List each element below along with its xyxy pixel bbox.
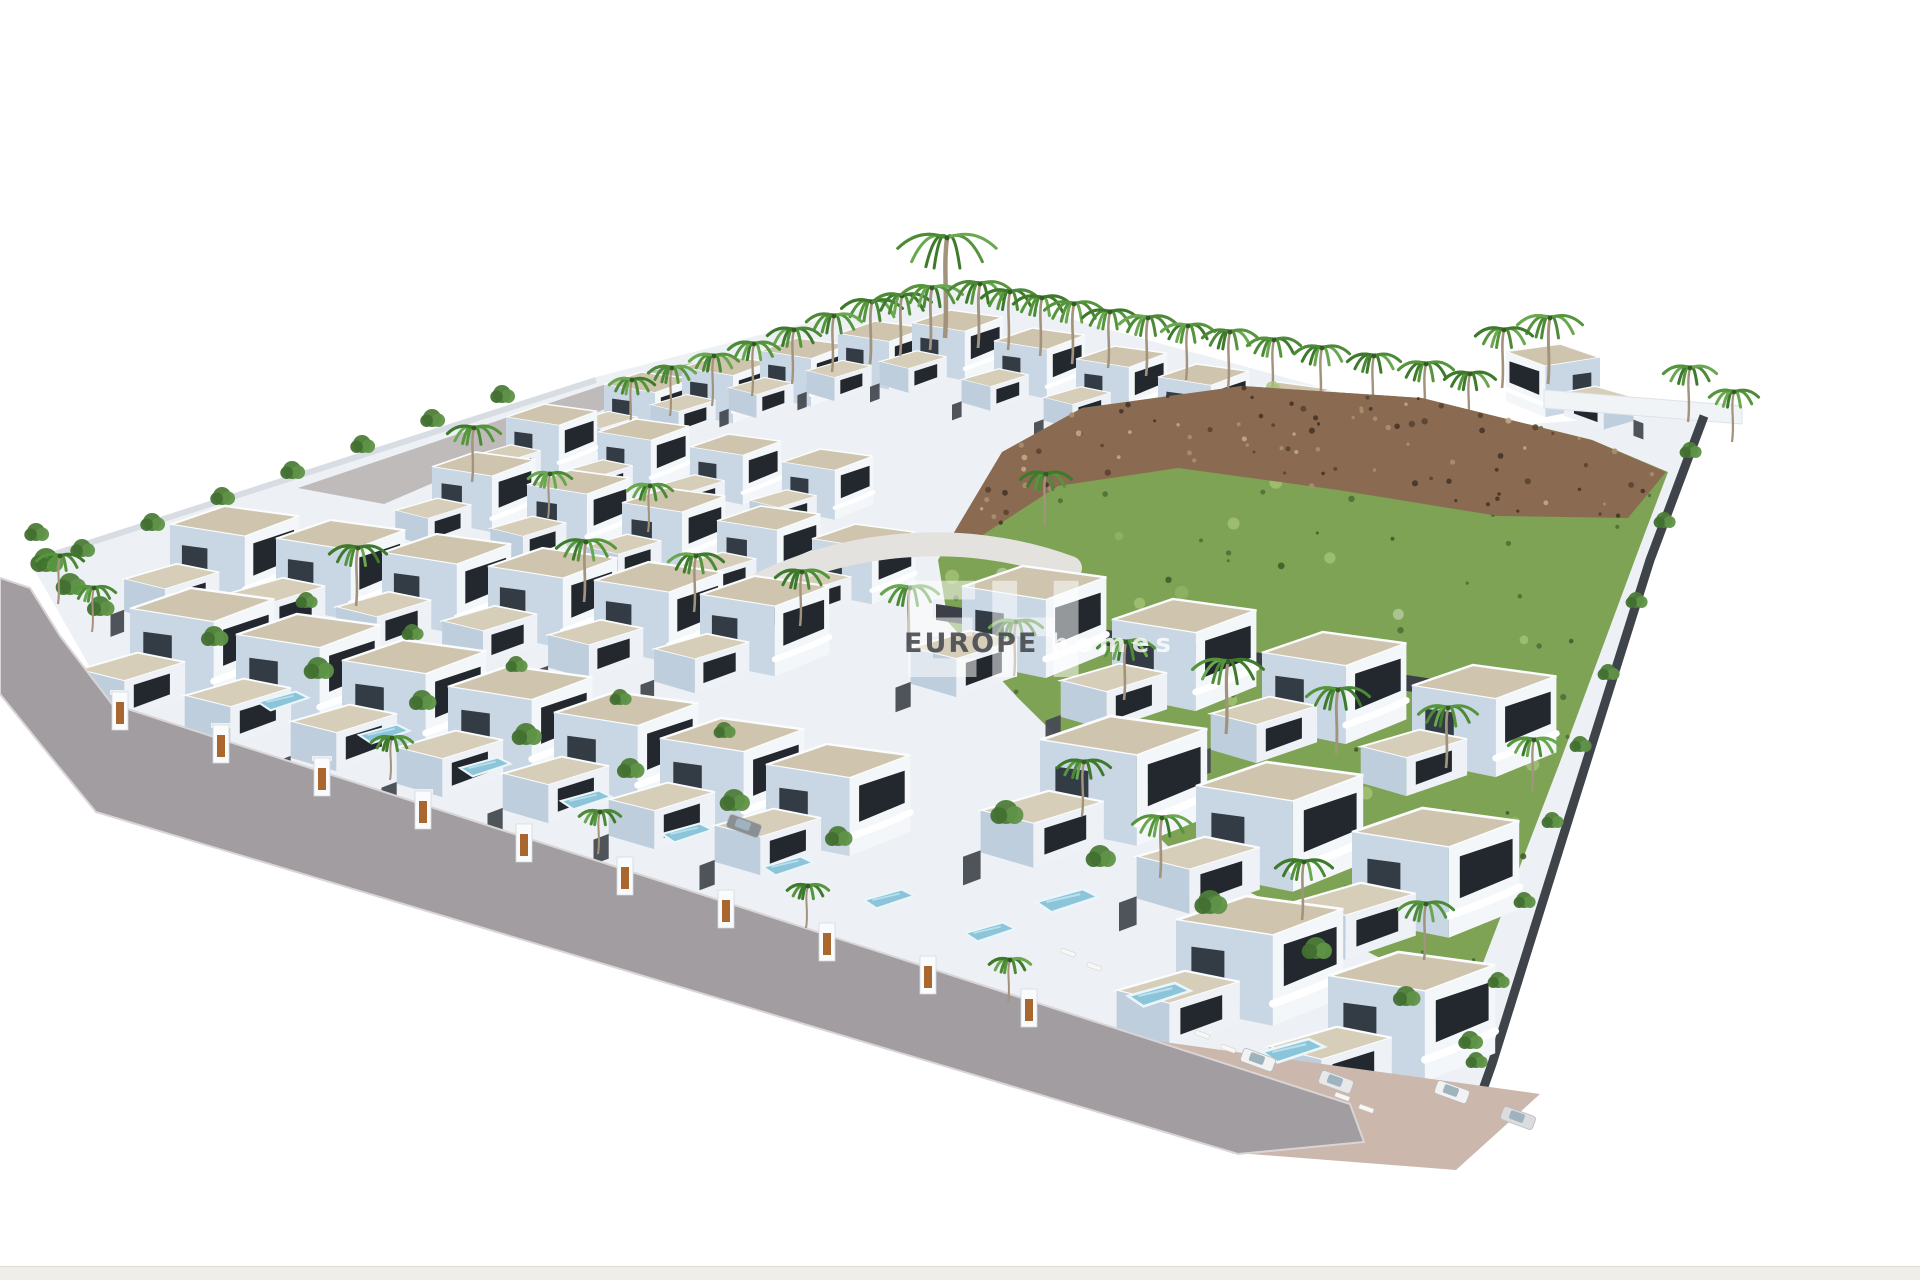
vegetation-speckle [945, 570, 959, 584]
bush-foliage [100, 601, 115, 616]
bush-foliage [1406, 991, 1421, 1006]
bush [490, 385, 515, 403]
gate-door [924, 966, 932, 988]
vegetation-speckle [1406, 443, 1409, 446]
vegetation-speckle [1300, 406, 1306, 412]
palm-crown [1160, 816, 1165, 821]
vegetation-speckle [1412, 480, 1418, 486]
vegetation-speckle [1506, 418, 1512, 424]
vegetation-speckle [1289, 401, 1294, 406]
bush-foliage [1476, 1056, 1488, 1068]
bush-foliage [825, 832, 839, 846]
vegetation-speckle [1520, 635, 1529, 644]
palm-crown [670, 366, 675, 371]
bush-foliage [1099, 851, 1116, 868]
palm-crown [1372, 354, 1377, 359]
bush-foliage [1524, 896, 1536, 908]
palm-trunk [92, 588, 94, 632]
entry-gate [312, 756, 332, 796]
bush-foliage [1680, 447, 1691, 458]
palm-crown [356, 546, 361, 551]
palm-crown [1446, 706, 1451, 711]
palm-trunk [472, 428, 474, 482]
palm-crown [806, 884, 811, 889]
palm-crown [584, 540, 589, 545]
bush-foliage [1470, 1036, 1484, 1050]
bush-foliage [214, 631, 229, 646]
bush-foliage [516, 660, 528, 672]
vegetation-speckle [1393, 609, 1404, 620]
vegetation-speckle [1259, 414, 1264, 419]
bush-foliage [409, 696, 423, 710]
bush-foliage [412, 628, 424, 640]
palm-crown [832, 314, 837, 319]
palm-crown [598, 810, 603, 815]
palm-crown [1040, 296, 1045, 301]
vegetation-speckle [1506, 811, 1510, 815]
bush-foliage [304, 664, 319, 679]
bush [350, 435, 375, 453]
palm-trunk [930, 288, 932, 350]
vegetation-speckle [1354, 747, 1358, 751]
vegetation-speckle [1386, 425, 1391, 430]
palm-crown [908, 586, 913, 591]
bush-foliage [306, 596, 318, 608]
vegetation-speckle [984, 497, 989, 502]
bush-foliage [1514, 897, 1525, 908]
vegetation-speckle [1359, 406, 1363, 410]
palm-trunk [390, 738, 392, 780]
bush-foliage [1315, 943, 1332, 960]
vegetation-speckle [1506, 541, 1511, 546]
bush [24, 523, 49, 541]
gate-door [520, 834, 528, 856]
palm-trunk [806, 886, 808, 928]
palm-crown [945, 236, 950, 241]
vegetation-speckle [1317, 422, 1320, 425]
bush-foliage [502, 390, 516, 404]
vegetation-speckle [1616, 514, 1620, 518]
vegetation-speckle [1497, 492, 1501, 496]
vegetation-speckle [1478, 413, 1483, 418]
palm-crown [1302, 860, 1307, 865]
palm-trunk [1186, 326, 1188, 380]
palm-trunk [630, 380, 632, 426]
bush-foliage [990, 807, 1007, 824]
entry-gate [413, 789, 433, 829]
vegetation-speckle [1648, 494, 1651, 497]
vegetation-speckle [1188, 435, 1192, 439]
vegetation-speckle [1117, 455, 1121, 459]
vegetation-speckle [1641, 489, 1646, 494]
vegetation-speckle [1058, 498, 1063, 503]
vegetation-speckle [1283, 471, 1286, 474]
vegetation-speckle [1498, 453, 1504, 459]
vegetation-speckle [1369, 407, 1373, 411]
palm-trunk [1082, 762, 1084, 816]
gate-door [823, 933, 831, 955]
vegetation-speckle [1391, 537, 1395, 541]
palm-trunk [1688, 368, 1690, 422]
vegetation-speckle [1292, 432, 1295, 435]
vegetation-speckle [1565, 735, 1569, 739]
vegetation-speckle [953, 595, 958, 600]
vegetation-speckle [1019, 443, 1024, 448]
vegetation-speckle [1486, 502, 1490, 506]
vegetation-speckle [1397, 627, 1403, 633]
vegetation-speckle [991, 514, 996, 519]
palm-crown [390, 736, 395, 741]
vegetation-speckle [1316, 447, 1321, 452]
bush-foliage [82, 544, 96, 558]
bush-foliage [152, 518, 166, 532]
vegetation-speckle [1348, 496, 1354, 502]
vegetation-speckle [1125, 402, 1130, 407]
palm-crown [472, 426, 477, 431]
vegetation-speckle [1578, 437, 1581, 440]
palm-crown [1228, 330, 1233, 335]
vegetation-speckle [1128, 430, 1132, 434]
page-bottom-strip [0, 1266, 1920, 1280]
vegetation-speckle [1237, 422, 1241, 426]
bush-foliage [1466, 1057, 1477, 1068]
vegetation-speckle [1466, 582, 1469, 585]
vegetation-speckle [1321, 472, 1325, 476]
bush-foliage [432, 414, 446, 428]
gate-door [318, 768, 326, 790]
bush [420, 409, 445, 427]
bush-foliage [317, 663, 334, 680]
bush-foliage [1626, 597, 1637, 608]
palm-trunk [800, 572, 802, 626]
bush-foliage [617, 764, 631, 778]
bush-foliage [296, 597, 307, 608]
vegetation-speckle [1241, 386, 1246, 391]
entry-gate [1019, 987, 1039, 1027]
vegetation-speckle [1069, 412, 1074, 417]
palm-crown [1226, 660, 1231, 665]
palm-trunk [978, 284, 980, 348]
vegetation-speckle [1134, 598, 1145, 609]
bush-foliage [201, 632, 215, 646]
vegetation-speckle [1446, 479, 1451, 484]
palm-trunk [584, 542, 586, 602]
bush [210, 487, 235, 505]
palm-crown [1186, 324, 1191, 329]
vegetation-speckle [1409, 421, 1415, 427]
palm-trunk [1072, 304, 1074, 364]
palm-crown [1108, 310, 1113, 315]
palm-crown [1008, 958, 1013, 963]
palm-crown [548, 472, 553, 477]
scene-canvas [0, 0, 1920, 1280]
vegetation-speckle [1102, 491, 1108, 497]
bush-foliage [402, 629, 413, 640]
vegetation-speckle [1003, 510, 1009, 516]
palm-crown [1124, 640, 1129, 645]
vegetation-speckle [1333, 467, 1337, 471]
vegetation-speckle [1394, 424, 1400, 430]
palm-crown [1424, 362, 1429, 367]
vegetation-speckle [1294, 450, 1298, 454]
vegetation-speckle [1417, 397, 1420, 400]
gate-door [419, 801, 427, 823]
vegetation-speckle [1309, 483, 1314, 488]
vegetation-speckle [1650, 472, 1654, 476]
bush-foliage [733, 795, 750, 812]
entry-gate [716, 888, 736, 928]
vegetation-speckle [1532, 424, 1538, 430]
palm-trunk [1146, 318, 1148, 376]
bush-foliage [1570, 741, 1581, 752]
bush-foliage [1664, 516, 1676, 528]
vegetation-speckle [1250, 396, 1253, 399]
palm-crown [58, 554, 63, 559]
vegetation-speckle [1309, 428, 1315, 434]
palm-crown [792, 328, 797, 333]
palm-crown [1532, 738, 1537, 743]
palm-trunk [1424, 904, 1426, 960]
bush-foliage [140, 518, 153, 531]
palm-crown [1502, 328, 1507, 333]
palm-trunk [712, 356, 714, 406]
vegetation-speckle [1279, 446, 1283, 450]
palm-crown [648, 484, 653, 489]
vegetation-speckle [1153, 419, 1156, 422]
palm-trunk [1124, 642, 1126, 700]
vegetation-speckle [1495, 497, 1500, 502]
vegetation-speckle [1324, 552, 1335, 563]
vegetation-speckle [1246, 443, 1249, 446]
palm-trunk [1226, 662, 1228, 734]
palm-trunk [1532, 740, 1534, 792]
gate-door [1025, 999, 1033, 1021]
vegetation-speckle [999, 521, 1003, 525]
palm-trunk [598, 812, 600, 854]
entry-gate [110, 690, 130, 730]
vegetation-speckle [1525, 478, 1531, 484]
bush-foliage [1194, 897, 1211, 914]
bush-foliage [1458, 1036, 1471, 1049]
bush-foliage [362, 440, 376, 454]
palm-crown [1072, 302, 1077, 307]
bush-foliage [1636, 596, 1648, 608]
vegetation-speckle [1316, 532, 1319, 535]
bush-foliage [525, 729, 542, 746]
gate-door [217, 735, 225, 757]
entry-gate [615, 855, 635, 895]
entry-gate [514, 822, 534, 862]
vegetation-speckle [1603, 503, 1606, 506]
vegetation-speckle [1187, 451, 1192, 456]
palm-crown [752, 342, 757, 347]
palm-crown [1320, 346, 1325, 351]
vegetation-speckle [1242, 436, 1247, 441]
palm-trunk [1160, 818, 1162, 878]
bush-foliage [350, 440, 363, 453]
palm-trunk [792, 330, 794, 384]
vegetation-speckle [1516, 510, 1519, 513]
palm-trunk [1044, 474, 1046, 526]
palm-trunk [1548, 318, 1550, 384]
vegetation-speckle [1036, 448, 1042, 454]
bush-foliage [292, 466, 306, 480]
vegetation-speckle [1615, 525, 1619, 529]
vegetation-speckle [1278, 563, 1285, 570]
palm-crown [1548, 316, 1553, 321]
bush-foliage [1542, 817, 1553, 828]
vegetation-speckle [1105, 469, 1111, 475]
bush-foliage [1488, 977, 1499, 988]
vegetation-speckle [1192, 458, 1196, 462]
aerial-render-page: EH EUROPEhomes [0, 0, 1920, 1280]
vegetation-speckle [980, 507, 983, 510]
palm-crown [800, 570, 805, 575]
vegetation-speckle [1021, 467, 1026, 472]
palm-crown [1272, 338, 1277, 343]
bush-foliage [838, 831, 853, 846]
bush-foliage [36, 528, 50, 542]
palm-crown [930, 286, 935, 291]
palm-trunk [832, 316, 834, 372]
vegetation-speckle [1253, 451, 1256, 454]
vegetation-speckle [1544, 500, 1549, 505]
palm-crown [1146, 316, 1151, 321]
gate-door [116, 702, 124, 724]
palm-crown [1424, 902, 1429, 907]
palm-crown [1044, 472, 1049, 477]
palm-crown [694, 554, 699, 559]
gate-door [621, 867, 629, 889]
vegetation-speckle [1260, 490, 1265, 495]
vegetation-speckle [1313, 415, 1318, 420]
vegetation-speckle [1520, 853, 1526, 859]
palm-trunk [1336, 690, 1338, 754]
vegetation-speckle [1628, 482, 1634, 488]
vegetation-speckle [1584, 463, 1588, 467]
vegetation-speckle [1560, 694, 1566, 700]
vegetation-speckle [1208, 427, 1213, 432]
vegetation-speckle [1286, 446, 1291, 451]
palm-trunk [694, 556, 696, 612]
entry-gate [211, 723, 231, 763]
vegetation-speckle [1199, 538, 1203, 542]
vegetation-speckle [1176, 423, 1179, 426]
bush-foliage [620, 693, 632, 705]
palm-crown [1082, 760, 1087, 765]
entry-gate [817, 921, 837, 961]
bush-foliage [610, 694, 621, 705]
palm-trunk [900, 296, 902, 356]
palm-trunk [1302, 862, 1304, 920]
palm-crown [712, 354, 717, 359]
vegetation-speckle [1373, 468, 1376, 471]
vegetation-speckle [1479, 428, 1485, 434]
bush-foliage [490, 390, 503, 403]
palm-trunk [1008, 292, 1010, 350]
bush-foliage [1005, 806, 1023, 824]
vegetation-speckle [1002, 490, 1008, 496]
bush-foliage [1608, 668, 1620, 680]
bush [140, 513, 165, 531]
palm-trunk [1732, 392, 1734, 442]
bush-foliage [1552, 816, 1564, 828]
palm-trunk [356, 548, 358, 606]
palm-trunk [648, 486, 650, 532]
vegetation-speckle [1115, 532, 1124, 541]
bush-foliage [24, 528, 37, 541]
vegetation-speckle [1518, 594, 1523, 599]
palm-crown [1008, 290, 1013, 295]
vegetation-speckle [1100, 444, 1104, 448]
vegetation-speckle [1598, 512, 1601, 515]
vegetation-speckle [1551, 432, 1554, 435]
bush-foliage [512, 730, 527, 745]
bush-foliage [630, 763, 645, 778]
vegetation-speckle [1495, 468, 1499, 472]
vegetation-speckle [1612, 448, 1618, 454]
palm-crown [1468, 372, 1473, 377]
vegetation-speckle [1439, 403, 1445, 409]
vegetation-speckle [1119, 409, 1124, 414]
bush-foliage [1086, 852, 1101, 867]
bush-foliage [720, 796, 735, 811]
vegetation-speckle [1271, 423, 1275, 427]
development-render [0, 0, 1920, 1280]
vegetation-speckle [1429, 477, 1433, 481]
bush-foliage [422, 695, 437, 710]
vegetation-speckle [1227, 559, 1230, 562]
palm-crown [92, 586, 97, 591]
bush [280, 461, 305, 479]
bush-foliage [1654, 517, 1665, 528]
bush-foliage [1580, 740, 1592, 752]
palm-trunk [548, 474, 550, 518]
palm-trunk [908, 588, 910, 646]
bush-foliage [1498, 976, 1510, 988]
vegetation-speckle [1175, 586, 1189, 600]
vegetation-speckle [1166, 395, 1170, 399]
palm-trunk [870, 302, 872, 364]
bush-foliage [210, 492, 223, 505]
vegetation-speckle [1569, 639, 1574, 644]
bush-foliage [1393, 992, 1407, 1006]
palm-trunk [1502, 330, 1504, 388]
vegetation-speckle [1373, 417, 1378, 422]
palm-trunk [1108, 312, 1110, 368]
palm-trunk [1008, 960, 1010, 1002]
vegetation-speckle [1454, 499, 1457, 502]
entry-gate [918, 954, 938, 994]
vegetation-speckle [1523, 446, 1526, 449]
bush-foliage [420, 414, 433, 427]
bush-foliage [1690, 446, 1702, 458]
bush-foliage [724, 726, 736, 738]
bush-foliage [714, 727, 725, 738]
bush-foliage [1302, 944, 1317, 959]
vegetation-speckle [1536, 643, 1541, 648]
bush-foliage [1598, 669, 1609, 680]
palm-crown [1014, 620, 1019, 625]
vegetation-speckle [1450, 460, 1455, 465]
palm-trunk [670, 368, 672, 416]
vegetation-speckle [985, 487, 991, 493]
vegetation-speckle [1422, 418, 1428, 424]
palm-trunk [752, 344, 754, 396]
bush-foliage [87, 602, 101, 616]
vegetation-speckle [1022, 455, 1028, 461]
palm-crown [630, 378, 635, 383]
